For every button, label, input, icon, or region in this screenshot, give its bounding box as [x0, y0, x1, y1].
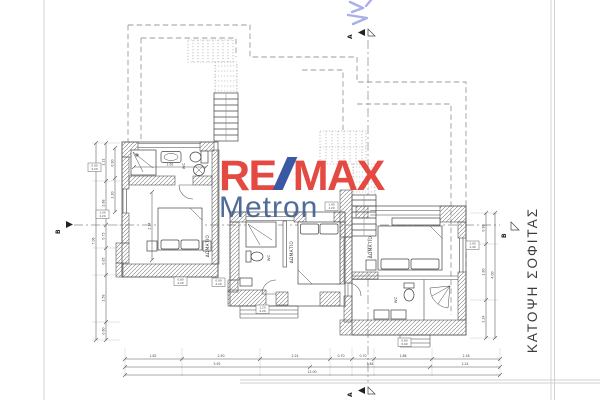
floor-plan-sheet: ΔΩΜΑΤΙΟ ΔΩΜΑΤΙΟ ΔΩΜΑΤΙΟ WC WC WC: [0, 0, 600, 400]
svg-text:Α: Α: [347, 34, 354, 39]
svg-text:1.80: 1.80: [482, 268, 486, 275]
svg-text:2.24: 2.24: [461, 362, 468, 366]
bed-symbol-left: [147, 208, 211, 251]
svg-text:2.20: 2.20: [259, 309, 265, 313]
tag: 0.902.20: [88, 163, 101, 172]
room-label-wc-middle: WC: [266, 254, 271, 261]
svg-text:2.68: 2.68: [102, 199, 106, 206]
shower-symbol-right: [430, 286, 450, 308]
svg-text:2.20: 2.20: [215, 282, 221, 286]
stairs-dotted-upper-right: [320, 131, 375, 195]
section-marker-a-top: Α: [347, 29, 375, 39]
svg-text:1.58: 1.58: [102, 294, 106, 301]
svg-text:0.98: 0.98: [482, 224, 486, 231]
toilet-symbol-right: [404, 283, 414, 301]
svg-text:2.18: 2.18: [462, 354, 469, 358]
svg-text:1.86: 1.86: [399, 354, 406, 358]
svg-text:1.40: 1.40: [469, 245, 475, 249]
svg-text:2.50: 2.50: [217, 354, 224, 358]
svg-text:5.92: 5.92: [213, 362, 220, 366]
svg-text:7.06: 7.06: [92, 237, 96, 244]
tag: 1.401.20: [325, 202, 338, 211]
floor-plan-svg: ΔΩΜΑΤΙΟ ΔΩΜΑΤΙΟ ΔΩΜΑΤΙΟ WC WC WC: [0, 0, 600, 400]
svg-text:1.21: 1.21: [102, 158, 106, 165]
svg-text:Β: Β: [55, 229, 62, 234]
svg-text:0.75: 0.75: [102, 232, 106, 239]
section-marker-a-bottom: Α: [347, 387, 375, 397]
door-right-unit: [348, 283, 361, 296]
blue-scribble: [348, 0, 371, 24]
svg-text:Α: Α: [347, 392, 354, 397]
vanity-symbol-right-2: [391, 310, 406, 319]
section-marker-b-left: Β: [55, 221, 73, 234]
tag: 1.002.20: [96, 210, 109, 219]
room-label-wc-right: WC: [393, 296, 398, 303]
svg-text:0.60: 0.60: [102, 327, 106, 334]
svg-text:0.90: 0.90: [111, 159, 115, 166]
room-label-wc-left: WC: [181, 162, 186, 169]
dresser-symbol-right: [392, 218, 440, 225]
svg-text:2.20: 2.20: [177, 281, 183, 285]
door-left-bath: [179, 185, 193, 199]
svg-text:0.85: 0.85: [102, 257, 106, 264]
svg-text:2.20: 2.20: [99, 214, 105, 218]
stairs-dotted-upper-left: [188, 40, 237, 93]
svg-text:12.00: 12.00: [307, 370, 316, 374]
room-label-bedroom-right: ΔΩΜΑΤΙΟ: [368, 235, 373, 258]
tag: 0.902.20: [212, 278, 225, 287]
section-marker-b-right: Β: [501, 222, 519, 238]
sheet-frame: [44, 0, 600, 400]
svg-text:0.60: 0.60: [401, 342, 407, 346]
nightstand-right: [366, 260, 376, 270]
svg-text:3.84: 3.84: [366, 362, 373, 366]
vanity-symbol-right-1: [374, 310, 389, 319]
boiler-symbol-left: [194, 165, 205, 176]
bed-symbol-right: [366, 226, 442, 270]
svg-text:2.24: 2.24: [482, 315, 486, 322]
tag: 0.800.60: [398, 338, 411, 347]
bed-symbol-middle: [298, 222, 340, 284]
toilet-symbol-middle: [246, 251, 263, 262]
room-label-bedroom-middle: ΔΩΜΑΤΙΟ: [289, 240, 294, 263]
sink-symbol-left: [161, 152, 181, 163]
svg-text:2.62: 2.62: [166, 163, 173, 167]
tag: 0.802.20: [174, 277, 187, 286]
svg-text:Β: Β: [501, 233, 508, 238]
svg-text:0.70: 0.70: [359, 354, 366, 358]
svg-text:1.20: 1.20: [328, 206, 334, 210]
svg-text:2.24: 2.24: [291, 354, 298, 358]
tag: 1.001.40: [466, 241, 479, 250]
tag: 1.202.20: [256, 305, 269, 314]
svg-text:2.20: 2.20: [91, 167, 97, 171]
svg-text:0.70: 0.70: [337, 354, 344, 358]
shower-symbol-middle: [246, 222, 276, 247]
room-label-bedroom-left: ΔΩΜΑΤΙΟ: [205, 234, 210, 257]
drawing-title: ΚΑΤΟΨΗ ΣΟΦΙΤΑΣ: [525, 207, 540, 353]
toilet-symbol-left: [190, 151, 208, 163]
svg-text:2.24: 2.24: [148, 222, 152, 229]
staircase-left: [214, 93, 238, 141]
cabinet-symbol-middle: [240, 278, 252, 286]
shower-symbol-left: [131, 150, 156, 175]
svg-text:1.30: 1.30: [111, 191, 115, 198]
svg-text:4.00: 4.00: [491, 271, 495, 278]
svg-text:1.82: 1.82: [149, 354, 156, 358]
